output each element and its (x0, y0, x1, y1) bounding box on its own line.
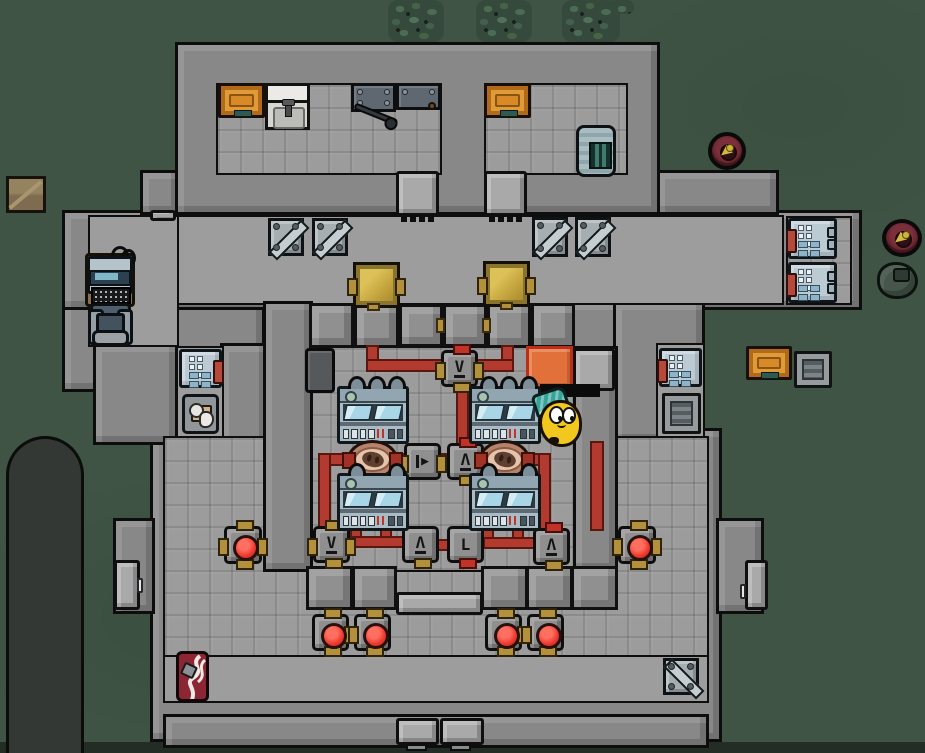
berry-bush[interactable] (610, 0, 634, 14)
button-grid (669, 371, 693, 385)
plank-scratch (8, 180, 42, 209)
chemfuel-generator[interactable] (469, 473, 541, 531)
red-button-valve[interactable] (312, 614, 349, 651)
door-teeth (401, 215, 441, 223)
south-door[interactable] (396, 718, 439, 745)
battery-connector (500, 302, 513, 310)
pipe-port (218, 538, 229, 556)
boulder-knob (893, 268, 910, 282)
orange-table[interactable] (218, 83, 265, 118)
east-courtyard-door[interactable] (745, 560, 768, 610)
battery-connector (367, 303, 380, 311)
barricade-block (571, 566, 618, 610)
generator-band (340, 422, 406, 426)
generator-gauges (343, 515, 403, 526)
table-item (234, 110, 252, 117)
pump-box-right[interactable]: ▶ (404, 443, 441, 480)
wall-block (443, 304, 487, 347)
generator-top (340, 476, 406, 490)
rock-column (6, 436, 84, 753)
generator-gauges (343, 428, 403, 439)
vent-slats-icon (670, 401, 693, 426)
vent[interactable] (794, 351, 832, 388)
handle-icon (657, 359, 668, 383)
south-door[interactable] (440, 718, 484, 745)
wall-below-comms (93, 343, 178, 445)
cursor-dot-icon (902, 231, 910, 239)
pawn-mouth (557, 421, 566, 428)
console-screen (95, 273, 118, 280)
generator-band (340, 509, 406, 513)
valve-box-down[interactable]: V (441, 350, 478, 387)
battery-tab (525, 277, 536, 295)
courtyard-walkway (163, 655, 709, 703)
hall-hatch[interactable] (150, 210, 176, 221)
generator-windows (475, 404, 535, 421)
orange-table[interactable] (484, 83, 531, 118)
red-button-valve[interactable] (224, 526, 262, 564)
fridge-unit[interactable] (788, 262, 837, 303)
wooden-crate[interactable] (6, 176, 46, 213)
barrel-window (589, 142, 612, 169)
door-handle-icon (137, 578, 143, 593)
barricade-block (306, 566, 353, 610)
pipe-port (324, 608, 342, 619)
wall-block (531, 303, 575, 348)
generator-gauges (475, 515, 535, 526)
machine-room-west-wall (263, 301, 313, 572)
vent[interactable] (662, 393, 701, 434)
table-panel (495, 94, 520, 107)
fridge-unit[interactable] (659, 348, 702, 387)
button-grid (798, 225, 819, 237)
door-teeth (489, 215, 529, 223)
berry-bush[interactable] (388, 0, 444, 42)
comms-console[interactable] (85, 253, 135, 307)
generator-top (340, 389, 406, 403)
bedroom-right-door[interactable] (484, 171, 527, 216)
barricade-block (526, 566, 573, 610)
fuel-pipe (483, 537, 538, 549)
proximity-mine[interactable] (708, 132, 746, 170)
pump-bar-icon (416, 455, 419, 468)
generator-band (472, 422, 538, 426)
red-button-icon (233, 535, 259, 561)
hall-step-nw (140, 170, 180, 215)
cursor-dot-icon (726, 144, 734, 152)
handle-icon (786, 229, 797, 253)
generator-windows (343, 404, 403, 421)
door-handle-icon (740, 584, 746, 599)
red-button-icon (536, 623, 562, 649)
door-sill (450, 744, 471, 751)
wall-right-of-left-niche (220, 343, 268, 445)
door-sill (406, 744, 427, 751)
pipe-port (236, 520, 254, 531)
chemfuel-generator[interactable] (337, 473, 409, 531)
pipe-port (521, 626, 532, 644)
button-grid (189, 372, 213, 386)
pipe-port (348, 626, 359, 644)
table-item (761, 372, 779, 379)
valve-box-up[interactable]: Λ (533, 528, 570, 565)
valve-box-elbow[interactable]: L (447, 526, 484, 563)
generator-band (472, 509, 538, 513)
hinge-icon (827, 227, 836, 238)
red-button-valve[interactable] (527, 614, 564, 651)
barricade-block (352, 566, 397, 610)
chair-base (92, 330, 129, 346)
supply-crate[interactable] (575, 217, 611, 257)
small-knob (428, 102, 436, 110)
red-button-icon (363, 623, 389, 649)
chemfuel-generator[interactable] (337, 386, 409, 444)
supply-crate[interactable] (663, 658, 699, 695)
sink-unit[interactable] (265, 83, 310, 130)
red-bedroll[interactable] (176, 651, 209, 702)
faucet-head-icon (282, 99, 295, 106)
pipe-port (539, 608, 557, 619)
hall-floor (88, 215, 784, 305)
supply-crate[interactable] (532, 217, 568, 257)
generator-gauges (475, 428, 535, 439)
bolt-icon (345, 391, 357, 403)
pawn-foot (549, 437, 559, 444)
pipe-coupling (482, 318, 491, 333)
hall-step-ne (656, 170, 779, 215)
red-button-icon (321, 623, 347, 649)
red-button-valve[interactable] (485, 614, 522, 651)
bolt-icon (477, 478, 489, 490)
breaker-panel[interactable] (305, 348, 335, 393)
handle-icon (213, 360, 224, 384)
cloth-item (199, 411, 214, 428)
bedroll-pattern (179, 654, 209, 702)
red-button-valve[interactable] (618, 526, 656, 564)
generator-top (472, 476, 538, 490)
wall-block (309, 303, 354, 348)
berry-bush[interactable] (476, 0, 532, 42)
proximity-mine[interactable] (882, 219, 922, 257)
table-item (500, 110, 518, 117)
pipe-port (630, 520, 648, 531)
table-panel (229, 94, 254, 107)
handle-icon (786, 273, 797, 297)
valve-box-down[interactable]: V (313, 526, 350, 563)
supply-crate[interactable] (268, 218, 304, 256)
fridge-unit[interactable] (179, 349, 222, 388)
hinge-icon (827, 283, 836, 294)
red-button-icon (494, 623, 520, 649)
gold-battery[interactable] (353, 262, 400, 308)
barricade-block (481, 566, 528, 610)
workbench[interactable] (182, 394, 219, 434)
button-grid (798, 285, 822, 299)
bolt-icon (345, 478, 357, 490)
keyboard-icon (91, 287, 131, 304)
pipe-coupling (436, 318, 445, 333)
low-barricade[interactable] (396, 592, 483, 615)
red-button-icon (627, 535, 653, 561)
button-grid (189, 356, 210, 368)
table-panel (757, 357, 781, 369)
pipe-port (497, 608, 515, 619)
battery-tab (477, 277, 488, 295)
vent-slats-icon (802, 359, 824, 380)
water-barrel[interactable] (576, 125, 616, 177)
colonist-pawn[interactable] (530, 388, 580, 444)
supply-crate[interactable] (312, 218, 348, 256)
orange-table[interactable] (746, 346, 792, 380)
button-grid (798, 269, 819, 281)
button-grid (798, 241, 822, 255)
gold-battery[interactable] (483, 261, 530, 307)
pipe-port (366, 608, 384, 619)
red-button-valve[interactable] (354, 614, 391, 651)
office-chair[interactable] (88, 303, 133, 346)
button-grid (669, 355, 690, 367)
battery-tab (395, 278, 406, 296)
generator-top (472, 389, 538, 403)
battery-tab (347, 278, 358, 296)
game-viewport: V ▶ Λ V Λ L Λ (0, 0, 925, 753)
valve-box-up[interactable]: Λ (402, 526, 439, 563)
generator-windows (475, 491, 535, 508)
wall-pipe (590, 441, 604, 531)
bolt-icon (477, 391, 489, 403)
generator-windows (343, 491, 403, 508)
hinge-icon (827, 239, 836, 250)
pipe-port (612, 538, 623, 556)
fridge-unit[interactable] (788, 218, 837, 259)
hinge-icon (827, 271, 836, 282)
bedroom-left-door[interactable] (396, 171, 439, 216)
stone-boulder[interactable] (877, 262, 918, 299)
